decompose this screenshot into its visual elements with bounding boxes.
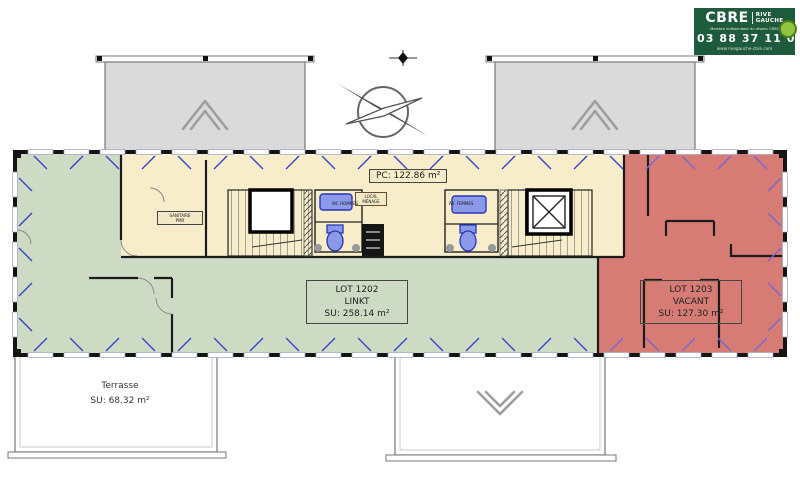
terrasse-area: SU: 68.32 m² [55, 394, 185, 409]
lot-1203-label: LOT 1203 VACANT SU: 127.30 m² [640, 280, 742, 324]
lot-area: SU: 127.30 m² [645, 308, 737, 320]
lot-status: VACANT [645, 296, 737, 308]
brand-tagline: Membre indépendant du réseau CBRE [697, 27, 792, 31]
phone-number: 03 88 37 11 00 [697, 32, 792, 45]
lot-1202-label: LOT 1202 LINKT SU: 258.14 m² [306, 280, 408, 324]
stairwell-left [228, 190, 312, 256]
logo-divider [752, 12, 753, 24]
terrace-top-left [96, 56, 314, 152]
terrasse-name: Terrasse [55, 379, 185, 394]
north-arrow-icon [338, 84, 428, 137]
room-wc-hommes-label: WC HOMMES [325, 201, 365, 206]
floorplan-drawing [0, 0, 800, 491]
terrace-bottom-center [386, 355, 616, 461]
pc-area-label: PC: 122.86 m² [369, 169, 447, 183]
lot-id: LOT 1202 [311, 284, 403, 296]
lot-area: SU: 258.14 m² [311, 308, 403, 320]
toilet-icon [327, 225, 343, 251]
terrace-top-right [486, 56, 704, 152]
room-sanitaire-pmr-label: SANITAIRE PMR [157, 211, 203, 225]
lot-tenant: LINKT [311, 296, 403, 308]
toilet-icon [460, 225, 476, 251]
axis-marker [389, 50, 417, 66]
floorplan-page: PC: 122.86 m² LOT 1202 LINKT SU: 258.14 … [0, 0, 800, 491]
lot-id: LOT 1203 [645, 284, 737, 296]
cbre-logo: CBRE RIVE GAUCHE Membre indépendant du r… [694, 8, 795, 55]
terrasse-label: Terrasse SU: 68.32 m² [55, 379, 185, 410]
website-url: www.rivegauche-cbre.com [697, 46, 792, 51]
cbre-wordmark: CBRE [705, 10, 748, 26]
brand-circle-icon [779, 20, 797, 38]
zone-lot-1202-left [17, 154, 121, 353]
room-wc-femmes-label: WC FEMMES [444, 201, 478, 206]
stairwell-right [500, 190, 592, 256]
technical-shaft [362, 224, 384, 256]
elevator-icon [527, 190, 571, 234]
